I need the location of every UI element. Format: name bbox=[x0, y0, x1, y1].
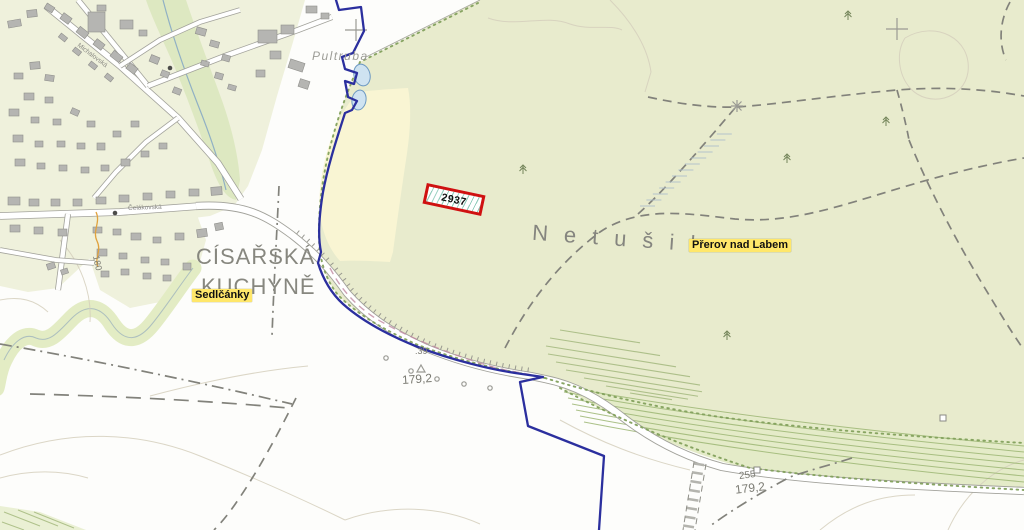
road-point-icon bbox=[168, 66, 173, 71]
highlight-label-sedlcanky[interactable]: Sedlčánky bbox=[192, 289, 252, 302]
spot-height-value-1: 179,2 bbox=[402, 371, 433, 387]
parcel-number: 2937 bbox=[440, 191, 467, 208]
highlight-label-prerov-nad-labem[interactable]: Přerov nad Labem bbox=[689, 239, 791, 252]
place-label-cisarska-line1: CÍSAŘSKÁ bbox=[196, 244, 315, 270]
map-canvas[interactable]: Pultruba Netušil CÍSAŘSKÁ KUCHYNĚ Sedlčá… bbox=[0, 0, 1024, 530]
spot-height-code-39: .39 bbox=[415, 346, 428, 356]
topographic-map bbox=[0, 0, 1024, 530]
star-landmark-icon bbox=[731, 100, 743, 112]
place-label-pultruba: Pultruba bbox=[312, 49, 369, 63]
street-label-celakovska: Čelákovská bbox=[128, 204, 162, 212]
boundary-stone-icon bbox=[940, 415, 946, 421]
road-point-icon bbox=[113, 211, 118, 216]
